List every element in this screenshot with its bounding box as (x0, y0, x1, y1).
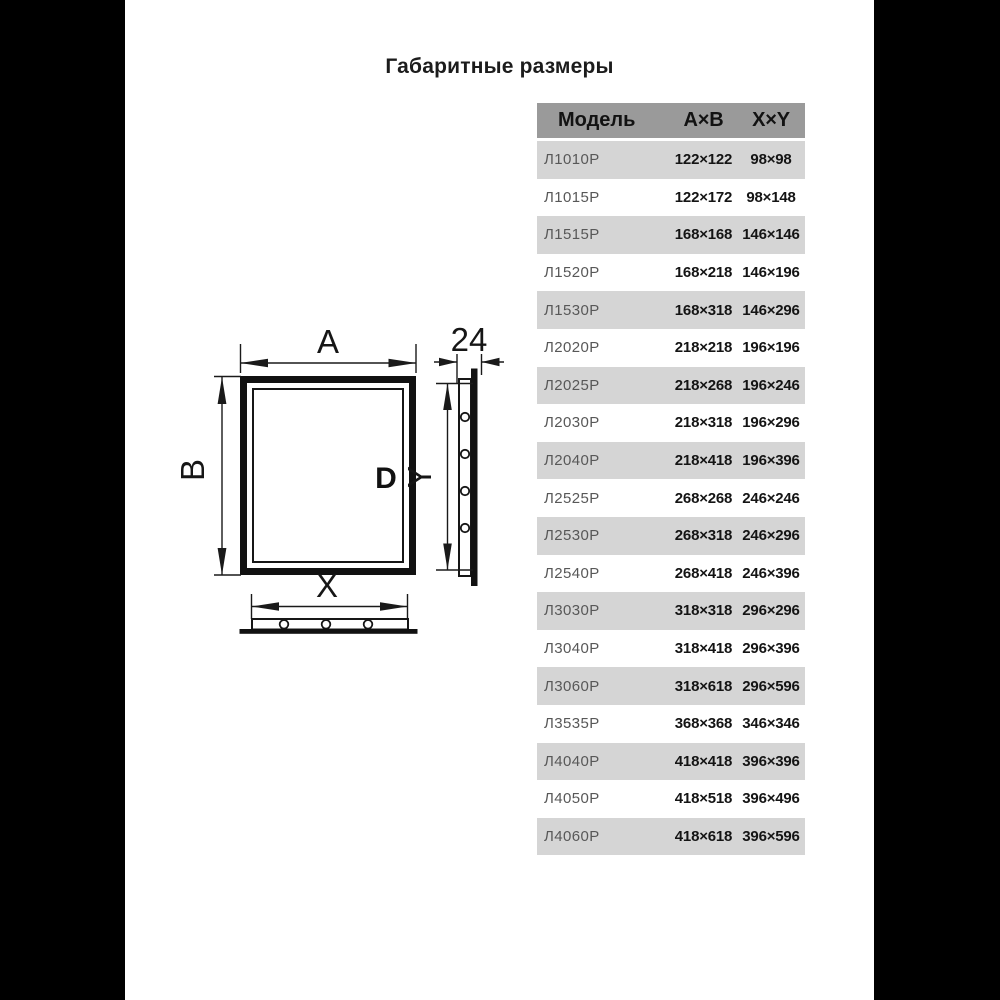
xy-cell: 396×596 (737, 828, 805, 845)
ab-cell: 268×418 (670, 565, 737, 582)
table-row: Л1530Р168×318146×296 (537, 291, 805, 329)
label-b: B (174, 459, 211, 481)
model-cell: Л2020Р (537, 339, 670, 356)
header-ab: А×В (670, 109, 737, 132)
xy-cell: 296×296 (737, 602, 805, 619)
ab-cell: 218×418 (670, 452, 737, 469)
table-row: Л1515Р168×168146×146 (537, 216, 805, 254)
label-x: X (316, 567, 338, 604)
ab-cell: 218×318 (670, 414, 737, 431)
screenshot-root: Габаритные размеры A B D (0, 0, 1000, 1000)
ab-cell: 368×368 (670, 715, 737, 732)
xy-cell: 196×296 (737, 414, 805, 431)
model-cell: Л4060Р (537, 828, 670, 845)
page-title: Габаритные размеры (125, 55, 874, 79)
model-cell: Л3535Р (537, 715, 670, 732)
xy-cell: 396×496 (737, 790, 805, 807)
table-row: Л2040Р218×418196×396 (537, 442, 805, 480)
label-a: A (317, 323, 339, 360)
mount-hole (280, 620, 289, 629)
side-flange (471, 369, 478, 587)
ab-cell: 318×318 (670, 602, 737, 619)
table-row: Л2540Р268×418246×396 (537, 555, 805, 593)
xy-cell: 196×396 (737, 452, 805, 469)
model-cell: Л4040Р (537, 753, 670, 770)
model-cell: Л1010Р (537, 151, 670, 168)
xy-cell: 196×246 (737, 377, 805, 394)
model-cell: Л1015Р (537, 189, 670, 206)
label-depth: 24 (451, 321, 488, 358)
table-row: Л2525Р268×268246×246 (537, 479, 805, 517)
ab-cell: 218×268 (670, 377, 737, 394)
model-cell: Л3060Р (537, 678, 670, 695)
xy-cell: 98×98 (737, 151, 805, 168)
ab-cell: 268×318 (670, 527, 737, 544)
model-cell: Л2540Р (537, 565, 670, 582)
table-body: Л1010Р122×12298×98Л1015Р122×17298×148Л15… (537, 141, 805, 855)
ab-cell: 168×168 (670, 226, 737, 243)
ab-cell: 122×122 (670, 151, 737, 168)
xy-cell: 146×296 (737, 302, 805, 319)
mount-hole (461, 524, 469, 532)
table-row: Л4050Р418×518396×496 (537, 780, 805, 818)
model-cell: Л3030Р (537, 602, 670, 619)
xy-cell: 246×246 (737, 490, 805, 507)
spec-table: Модель А×В X×Y Л1010Р122×12298×98Л1015Р1… (537, 103, 805, 855)
model-cell: Л1515Р (537, 226, 670, 243)
bottom-strip (240, 619, 418, 634)
table-row: Л3060Р318×618296×596 (537, 667, 805, 705)
model-cell: Л2040Р (537, 452, 670, 469)
table-row: Л3535Р368×368346×346 (537, 705, 805, 743)
table-row: Л2025Р218×268196×246 (537, 367, 805, 405)
xy-cell: 196×196 (737, 339, 805, 356)
model-cell: Л2025Р (537, 377, 670, 394)
table-row: Л1015Р122×17298×148 (537, 179, 805, 217)
xy-cell: 246×296 (737, 527, 805, 544)
dimension-24: 24 (434, 321, 504, 384)
ab-cell: 418×518 (670, 790, 737, 807)
table-row: Л2530Р268×318246×296 (537, 517, 805, 555)
table-row: Л1010Р122×12298×98 (537, 141, 805, 179)
xy-cell: 98×148 (737, 189, 805, 206)
table-row: Л4040Р418×418396×396 (537, 743, 805, 781)
mount-hole (461, 487, 469, 495)
ab-cell: 318×618 (670, 678, 737, 695)
xy-cell: 296×396 (737, 640, 805, 657)
model-cell: Л1520Р (537, 264, 670, 281)
header-model: Модель (537, 109, 670, 132)
table-row: Л3030Р318×318296×296 (537, 592, 805, 630)
model-cell: Л2530Р (537, 527, 670, 544)
ab-cell: 168×318 (670, 302, 737, 319)
model-cell: Л3040Р (537, 640, 670, 657)
header-xy: X×Y (737, 109, 805, 132)
table-row: Л2030Р218×318196×296 (537, 404, 805, 442)
mount-hole (322, 620, 331, 629)
table-row: Л3040Р318×418296×396 (537, 630, 805, 668)
label-y: Y (401, 466, 438, 488)
ab-cell: 318×418 (670, 640, 737, 657)
ab-cell: 122×172 (670, 189, 737, 206)
xy-cell: 146×196 (737, 264, 805, 281)
table-row: Л2020Р218×218196×196 (537, 329, 805, 367)
bottom-flange (240, 629, 418, 634)
ab-cell: 418×418 (670, 753, 737, 770)
ab-cell: 168×218 (670, 264, 737, 281)
table-row: Л1520Р168×218146×196 (537, 254, 805, 292)
table-row: Л4060Р418×618396×596 (537, 818, 805, 856)
ab-cell: 218×218 (670, 339, 737, 356)
model-cell: Л4050Р (537, 790, 670, 807)
label-handle: D (375, 462, 397, 495)
xy-cell: 346×346 (737, 715, 805, 732)
mount-hole (364, 620, 373, 629)
model-cell: Л2525Р (537, 490, 670, 507)
xy-cell: 146×146 (737, 226, 805, 243)
dimension-a: A (240, 323, 417, 373)
dimensions-drawing: A B D X 24 (160, 315, 520, 655)
mount-hole (461, 450, 469, 458)
side-strip (459, 369, 478, 587)
table-header: Модель А×В X×Y (537, 103, 805, 141)
xy-cell: 396×396 (737, 753, 805, 770)
ab-cell: 418×618 (670, 828, 737, 845)
xy-cell: 296×596 (737, 678, 805, 695)
model-cell: Л2030Р (537, 414, 670, 431)
mount-hole (461, 413, 469, 421)
dimension-b: B (174, 377, 241, 576)
model-cell: Л1530Р (537, 302, 670, 319)
xy-cell: 246×396 (737, 565, 805, 582)
ab-cell: 268×268 (670, 490, 737, 507)
